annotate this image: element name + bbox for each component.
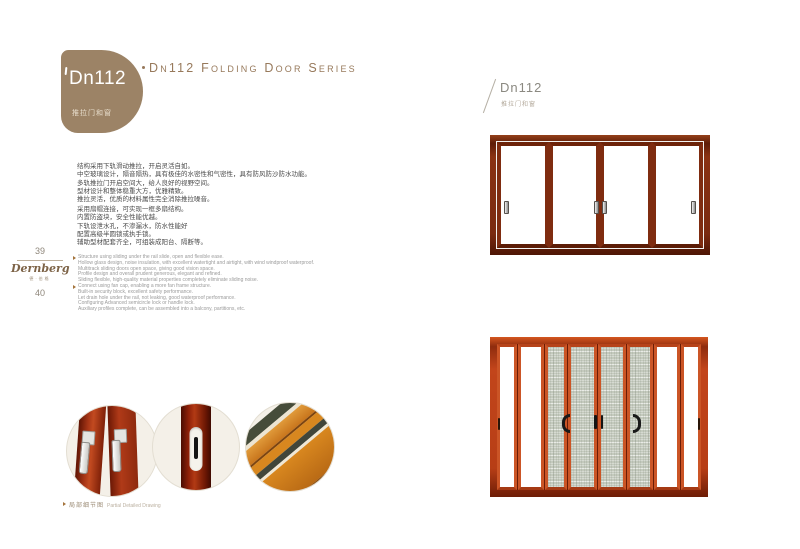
door-handle-icon (602, 201, 607, 214)
screen-panel (627, 344, 652, 490)
model-badge: Dn112 推拉门和窗 (61, 50, 143, 133)
profile-section (245, 402, 335, 492)
brand-sub-label: 德·伯格 (11, 276, 69, 282)
handle-detail-photo (66, 405, 158, 497)
door-handle-icon (504, 201, 509, 214)
flush-pull-detail-photo (152, 403, 240, 491)
door-handle-icon (594, 201, 599, 214)
heading-dot-icon (142, 66, 145, 69)
description-cn-line: 中空玻璃设计，隔音隔热，具有极佳的水密性和气密性，具有防风防沙防水功能。 (77, 171, 422, 179)
description-cn-line: 推拉灵活，优质的材料属性完全消除推拉噪音。 (77, 196, 422, 204)
description-cn-line: 型材设计和整体稳重大方，优雅精致。 (77, 188, 422, 196)
door-frame-inner (496, 141, 704, 249)
door-panel (549, 142, 601, 248)
door-panel (654, 344, 680, 490)
features-en-block: Connect using fan cap, enabling a more f… (78, 284, 408, 313)
pull-bar-icon (194, 437, 198, 459)
sliding-door-with-screens-photo (490, 337, 708, 497)
caption-en: Partial Detailed Drawing (107, 503, 161, 509)
door-panel (652, 142, 704, 248)
door-handle-icon (594, 415, 597, 429)
brand-divider (17, 260, 63, 261)
door-panel (681, 344, 701, 490)
curved-handle-icon (562, 414, 570, 433)
door-panel (497, 344, 517, 490)
bullet-icon (73, 285, 76, 289)
brand-logo: Dernberg (11, 262, 69, 275)
features-cn-line: 内置防盗块，安全性能优越。 (77, 214, 422, 222)
slash-mark-icon (483, 79, 496, 113)
description-cn-block: 结构采用下轨滑动推拉，开启灵活自如。 中空玻璃设计，隔音隔热，具有极佳的水密性和… (77, 163, 422, 204)
detail-caption: 局部细节图 Partial Detailed Drawing (69, 500, 161, 509)
wood-frame (74, 405, 107, 497)
right-category-label: 推拉门和窗 (501, 99, 536, 108)
features-en-line: Auxiliary profiles complete, can be asse… (78, 307, 408, 313)
page-title: Dn112 Folding Door Series (149, 61, 357, 75)
badge-category-label: 推拉门和窗 (72, 108, 112, 118)
right-model-number: Dn112 (500, 80, 542, 95)
bullet-icon (73, 256, 76, 260)
features-cn-block: 采用扇帽连接，可实现一框多扇结构。 内置防盗块，安全性能优越。 下轨设泄水孔，不… (77, 206, 422, 247)
page-number-top: 39 (20, 246, 60, 256)
door-handle-icon (698, 418, 700, 430)
description-cn-line: 多轨推拉门开启空间大，给人良好的视野空间。 (77, 180, 422, 188)
door-handle-icon (601, 415, 604, 429)
features-cn-line: 辅助型材配套齐全，可组装成阳台、隔断等。 (77, 239, 422, 247)
caption-cn: 局部细节图 (69, 500, 104, 509)
features-cn-line: 下轨设泄水孔，不渗漏水，防水性能好 (77, 223, 422, 231)
features-cn-line: 配置高级半圆锁或执手锁。 (77, 231, 422, 239)
bullet-icon (63, 502, 66, 506)
page-number-bottom: 40 (20, 288, 60, 298)
badge-tick-mark (65, 67, 68, 75)
door-handle-icon (498, 418, 500, 430)
door-handle-icon (691, 201, 696, 214)
door-panel (600, 142, 652, 248)
description-en-block: Structure using sliding under the rail s… (78, 255, 408, 284)
door-panel (497, 142, 549, 248)
door-frame-inner (497, 344, 701, 490)
door-panel (518, 344, 544, 490)
screen-panel (568, 344, 596, 490)
corner-profile-detail-photo (245, 402, 335, 492)
handle-lever-icon (111, 440, 121, 472)
badge-model-number: Dn112 (69, 68, 126, 90)
four-panel-sliding-door-photo (490, 135, 710, 255)
